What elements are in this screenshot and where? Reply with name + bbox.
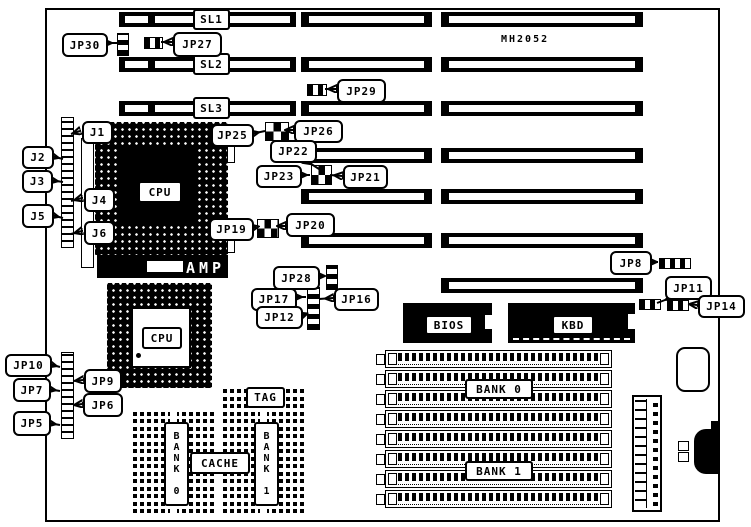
slot-contact-stripe: [449, 152, 635, 159]
din-solder-tab-2: [678, 452, 689, 462]
kbd-chip-pin-row: [513, 338, 630, 340]
simm-bank1-label: BANK 1: [465, 461, 533, 481]
callout-jp9: JP9: [84, 369, 122, 393]
isa-slot-sl2-seg3: [441, 57, 643, 72]
simm-clip-right: [600, 433, 609, 445]
isa-slot-sl1-seg2: [301, 12, 432, 27]
simm-socket-8: [385, 490, 612, 508]
simm-pin-tab: [376, 354, 385, 365]
slot-contact-stripe: [309, 152, 424, 159]
slot-contact-stripe: [309, 193, 424, 200]
slot-contact-stripe: [309, 105, 424, 112]
simm-clip-right: [600, 473, 609, 485]
slot-contact-stripe: [309, 61, 424, 68]
slot-contact-stripe: [449, 282, 635, 289]
isa-slot-row5-seg2: [301, 189, 432, 204]
callout-jp10: JP10: [5, 354, 52, 377]
simm-socket-1: [385, 350, 612, 368]
callout-jp29: JP29: [337, 79, 386, 103]
amp-window: [147, 261, 183, 272]
simm-clip-right: [600, 453, 609, 465]
cache-tag-label: TAG: [246, 387, 285, 408]
simm-pin-tab: [376, 414, 385, 425]
simm-clip-left: [388, 353, 397, 365]
bios-chip-notch: [485, 315, 492, 329]
jumper-jp21-jp22-jp23: [311, 165, 332, 185]
jumper-jp25-jp26: [265, 122, 289, 141]
callout-jp7: JP7: [13, 378, 51, 402]
cache-bank0-label: BANK 0: [164, 422, 189, 506]
callout-j6: J6: [84, 221, 115, 245]
motherboard-diagram: SL1 SL2 SL3 MH2052 CPU AMP CPU BIOS KBD …: [0, 0, 751, 527]
isa-slot-sl3-seg2: [301, 101, 432, 116]
simm-bank0-label: BANK 0: [465, 379, 533, 399]
kbd-chip-notch: [628, 314, 635, 329]
callout-jp30: JP30: [62, 33, 108, 57]
isa-slot-row5-seg3: [441, 189, 643, 204]
slot-keyway: [125, 16, 148, 23]
simm-clip-right: [600, 353, 609, 365]
power-connector: [632, 395, 662, 512]
callout-jp25: JP25: [211, 124, 254, 147]
isa-slot-row7-seg3: [441, 278, 643, 293]
jumper-jp30: [117, 33, 129, 56]
simm-pin-tab: [376, 494, 385, 505]
simm-pin-tab: [376, 374, 385, 385]
simm-pin-tab: [376, 394, 385, 405]
callout-jp21: JP21: [343, 165, 388, 189]
keyboard-din-connector: [694, 429, 720, 474]
callout-j3: J3: [22, 170, 53, 193]
simm-clip-right: [600, 393, 609, 405]
simm-pin-tab: [376, 474, 385, 485]
simm-clip-left: [388, 433, 397, 445]
simm-clip-left: [388, 473, 397, 485]
cache-bank1-label: BANK 1: [254, 422, 279, 506]
jumper-jp27: [144, 37, 163, 49]
callout-jp12: JP12: [256, 306, 303, 329]
isa-slot-row4-seg2: [301, 148, 432, 163]
simm-clip-right: [600, 413, 609, 425]
jumper-jp11: [639, 299, 661, 310]
callout-jp5: JP5: [13, 411, 51, 436]
slot-label-sl1: SL1: [193, 9, 230, 30]
jumper-jp28: [326, 265, 338, 290]
simm-clip-right: [600, 493, 609, 505]
pin-header-strip-upper: [61, 117, 74, 248]
model-number: MH2052: [501, 34, 549, 45]
callout-jp27: JP27: [173, 32, 222, 57]
slot-contact-stripe: [449, 193, 635, 200]
simm-clip-left: [388, 373, 397, 385]
isa-slot-row4-seg3: [441, 148, 643, 163]
simm-pin-tab: [376, 454, 385, 465]
isa-slot-sl3-seg3: [441, 101, 643, 116]
slot-contact-stripe: [449, 237, 635, 244]
callout-jp16: JP16: [334, 288, 379, 311]
simm-pin-tab: [376, 434, 385, 445]
jumper-jp14: [667, 300, 689, 311]
simm-clip-left: [388, 393, 397, 405]
cpu-secondary-label: CPU: [142, 327, 182, 349]
simm-socket-4: [385, 410, 612, 428]
slot-keyway: [125, 105, 148, 112]
slot-contact-stripe: [449, 16, 635, 23]
isa-slot-sl2-seg2: [301, 57, 432, 72]
cpu-primary-label: CPU: [138, 181, 182, 203]
battery-outline: [676, 347, 710, 392]
jumper-jp19-jp20: [257, 219, 279, 238]
slot-contact-stripe: [309, 237, 424, 244]
pin1-marker-dot: [136, 353, 141, 358]
kbd-label: KBD: [552, 315, 594, 335]
slot-contact-stripe: [449, 105, 635, 112]
callout-jp23: JP23: [256, 165, 302, 188]
callout-jp20: JP20: [286, 213, 335, 237]
isa-slot-row6-seg3: [441, 233, 643, 248]
callout-j1: J1: [82, 121, 113, 144]
isa-slot-sl1-seg3: [441, 12, 643, 27]
callout-jp28: JP28: [273, 266, 320, 290]
slot-contact-stripe: [309, 16, 424, 23]
jumper-jp8: [659, 258, 691, 269]
callout-jp22: JP22: [270, 140, 317, 163]
callout-j5: J5: [22, 204, 54, 228]
pin-header-strip-lower: [61, 352, 74, 439]
bios-label: BIOS: [425, 315, 473, 335]
jumper-jp29: [307, 84, 327, 96]
simm-clip-left: [388, 493, 397, 505]
din-solder-tab-1: [678, 441, 689, 451]
callout-j4: J4: [84, 188, 115, 212]
slot-contact-stripe: [449, 61, 635, 68]
simm-socket-5: [385, 430, 612, 448]
callout-jp19: JP19: [209, 218, 254, 241]
amp-label: AMP: [186, 259, 225, 277]
simm-clip-left: [388, 413, 397, 425]
callout-jp14: JP14: [698, 295, 745, 318]
slot-label-sl3: SL3: [193, 97, 230, 119]
simm-clip-right: [600, 373, 609, 385]
simm-clip-left: [388, 453, 397, 465]
callout-jp6: JP6: [83, 393, 123, 417]
callout-j2: J2: [22, 146, 54, 169]
callout-jp8: JP8: [610, 251, 652, 275]
slot-keyway: [125, 61, 148, 68]
jumper-jp17-jp16-jp12: [307, 287, 320, 330]
cache-label: CACHE: [190, 452, 250, 474]
